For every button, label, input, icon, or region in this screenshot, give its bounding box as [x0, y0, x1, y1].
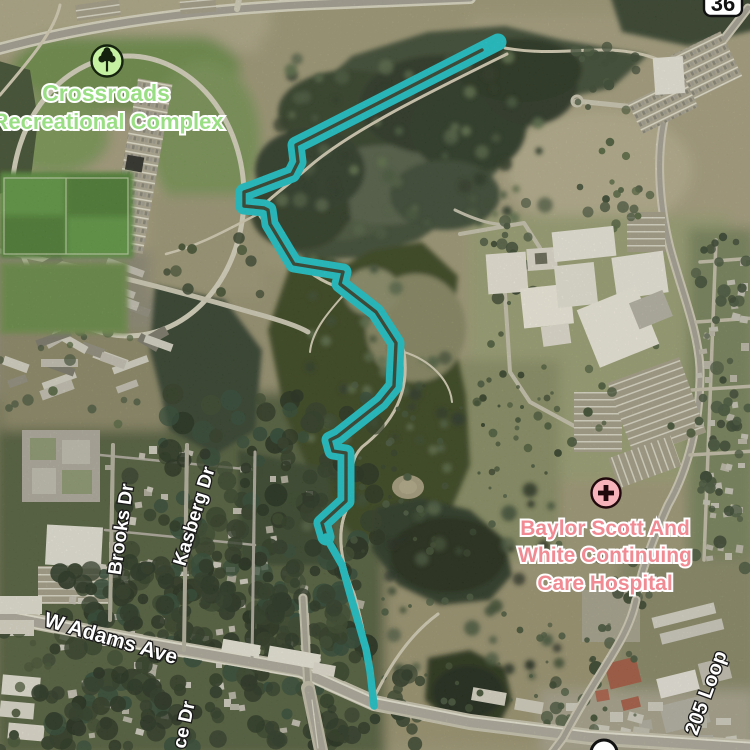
svg-text:Recreational Complex: Recreational Complex: [0, 109, 224, 134]
svg-text:White Continuing: White Continuing: [518, 544, 692, 567]
svg-text:36: 36: [711, 0, 735, 16]
svg-text:Care Hospital: Care Hospital: [537, 572, 672, 595]
svg-text:Crossroads: Crossroads: [42, 80, 170, 106]
svg-text:Baylor Scott And: Baylor Scott And: [520, 517, 690, 540]
